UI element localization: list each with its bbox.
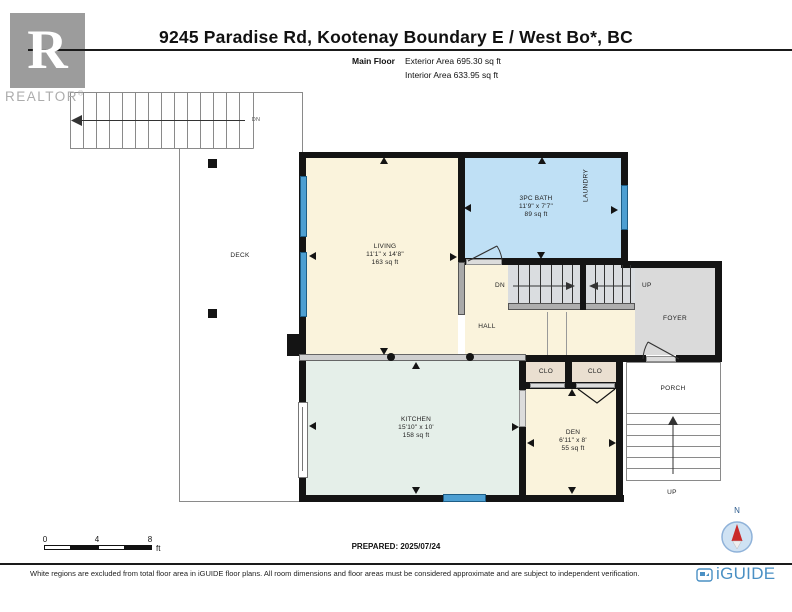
- entry-door-threshold: [646, 356, 676, 362]
- hall-area: [465, 265, 508, 355]
- wall-living-bath-divider: [458, 158, 465, 262]
- compass-icon: [719, 518, 755, 554]
- porch-label: PORCH: [643, 385, 703, 392]
- registered-mark: ®: [78, 91, 85, 98]
- living-window-1: [300, 176, 307, 237]
- scale-unit-label: ft: [156, 544, 160, 553]
- room-name: KITCHEN: [366, 416, 466, 424]
- iguide-logo-text: iGUIDE: [716, 564, 775, 584]
- laundry-label: LAUNDRY: [583, 156, 590, 216]
- realtor-wordmark: REALTOR®: [5, 89, 95, 104]
- den-door-threshold: [519, 390, 526, 427]
- porch-stair-arrowhead-icon: [668, 416, 678, 425]
- bath-label: 3PC BATH 11'9" x 7'7" 89 sq ft: [486, 195, 586, 219]
- room-name: DEN: [523, 429, 623, 437]
- wall-foyer-top: [621, 261, 722, 268]
- scale-bar-segment: [44, 545, 71, 550]
- room-area: 89 sq ft: [486, 211, 586, 219]
- room-name: LIVING: [335, 243, 435, 251]
- kitchen-patio-door: [298, 402, 308, 478]
- floor-label: Main Floor: [330, 56, 395, 66]
- scale-bar-segment: [125, 545, 152, 550]
- room-dims: 11'9" x 7'7": [486, 203, 586, 211]
- wall-stair-divider: [580, 261, 586, 310]
- porch-stair-treads: [627, 425, 721, 469]
- wall-foyer-right: [715, 261, 722, 362]
- closet1-label: CLO: [526, 368, 566, 375]
- bath-window: [621, 185, 628, 230]
- patio-door-divider: [302, 407, 303, 471]
- disclaimer-text: White regions are excluded from total fl…: [30, 569, 670, 578]
- porch-stairs-up-label: UP: [652, 489, 692, 496]
- exterior-area: Exterior Area 695.30 sq ft: [405, 56, 501, 66]
- deck-stairs-down-label: DN: [246, 117, 266, 123]
- deck-post-icon: [208, 309, 217, 318]
- porch-outline: [627, 363, 721, 481]
- scale-tick-0: 0: [38, 535, 52, 544]
- room-dims: 6'11" x 8': [523, 437, 623, 445]
- iguide-logo: iGUIDE: [696, 564, 775, 584]
- realtor-logo-letter: R: [10, 13, 85, 88]
- scale-bar-segment: [98, 545, 125, 550]
- compass-north-label: N: [731, 506, 743, 515]
- deck-stair-treads: [84, 93, 240, 149]
- kitchen-label: KITCHEN 15'10" x 10' 158 sq ft: [366, 416, 466, 440]
- deck-post-icon: [208, 159, 217, 168]
- closet1-threshold: [530, 383, 565, 388]
- foyer-label: FOYER: [645, 315, 705, 322]
- half-wall-living-hall: [458, 262, 465, 315]
- stairs-up-label: UP: [642, 282, 672, 289]
- scale-tick-8: 8: [143, 535, 157, 544]
- footer-divider: [0, 563, 792, 565]
- half-wall-kitchen: [299, 354, 526, 361]
- interior-area: Interior Area 633.95 sq ft: [405, 70, 498, 80]
- bath-door-threshold: [466, 259, 502, 265]
- scale-tick-4: 4: [90, 535, 104, 544]
- prepared-date: PREPARED: 2025/07/24: [300, 542, 492, 551]
- chimney-block: [287, 334, 304, 356]
- stair-landing-edge: [508, 303, 635, 310]
- wall-foyer-bottom-right: [676, 355, 722, 362]
- room-dims: 11'1" x 14'8": [335, 251, 435, 259]
- den-label: DEN 6'11" x 8' 55 sq ft: [523, 429, 623, 453]
- floorplan-page: R REALTOR® 9245 Paradise Rd, Kootenay Bo…: [0, 0, 792, 612]
- closet2-label: CLO: [575, 368, 615, 375]
- deck-stair-arrowhead-icon: [71, 115, 82, 126]
- header-divider: [28, 49, 792, 51]
- wall-foyer-bottom-left: [621, 355, 646, 362]
- wall-closet-mid: [565, 355, 572, 389]
- living-room-label: LIVING 11'1" x 14'8" 163 sq ft: [335, 243, 435, 267]
- room-area: 158 sq ft: [366, 432, 466, 440]
- deck-label: DECK: [210, 252, 270, 259]
- room-area: 55 sq ft: [523, 445, 623, 453]
- closet2-threshold: [576, 383, 615, 388]
- stairs-down-label: DN: [475, 282, 505, 289]
- page-title: 9245 Paradise Rd, Kootenay Boundary E / …: [0, 27, 792, 48]
- living-window-2: [300, 252, 307, 317]
- iguide-logo-icon: [696, 567, 713, 582]
- hall-label: HALL: [457, 323, 517, 330]
- stairs-down-area: [508, 265, 580, 303]
- room-dims: 15'10" x 10': [366, 424, 466, 432]
- scale-bar-segment: [71, 545, 98, 550]
- room-name: 3PC BATH: [486, 195, 586, 203]
- stairs-up-area: [586, 265, 635, 303]
- kitchen-window: [443, 494, 486, 502]
- room-area: 163 sq ft: [335, 259, 435, 267]
- hall-area-lower: [508, 310, 635, 355]
